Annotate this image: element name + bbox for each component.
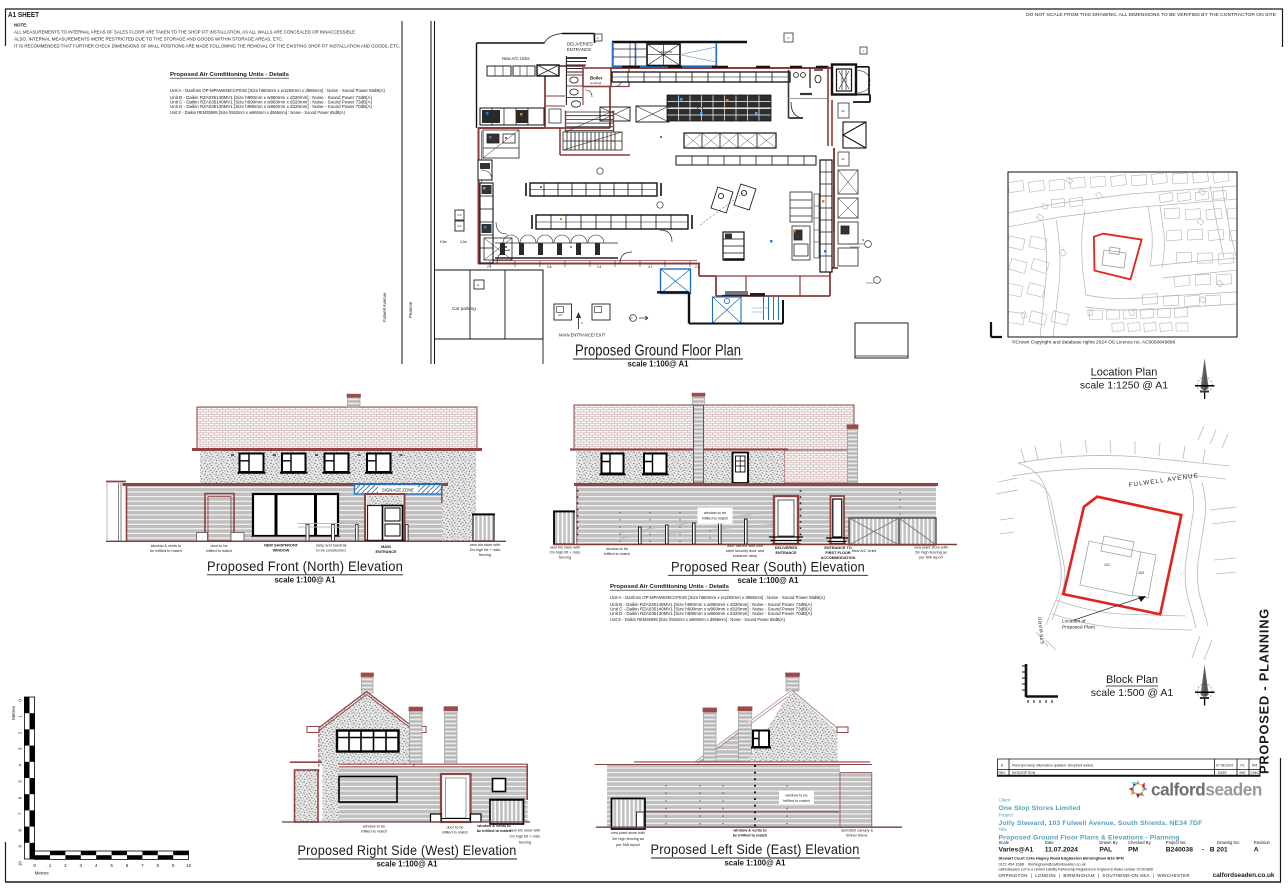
svg-text:B 201: B 201: [1210, 847, 1228, 854]
svg-text:Pearson: Pearson: [408, 301, 413, 318]
svg-text:103: 103: [1138, 571, 1144, 575]
svg-text:Unit E - Daikin REM35999 [Size: Unit E - Daikin REM35999 [Size h552mm x …: [170, 110, 346, 115]
svg-text:door altered with new: door altered with new: [727, 544, 763, 548]
svg-text:Boiler: Boiler: [590, 76, 603, 81]
svg-text:Unit D - Daikin RZA035130MV1 [: Unit D - Daikin RZA035130MV1 [Size h990m…: [610, 611, 813, 616]
svg-text:Revision: Revision: [1254, 840, 1271, 845]
svg-text:to be constructed: to be constructed: [316, 549, 345, 553]
svg-text:3: 3: [80, 863, 83, 868]
svg-text:0: 0: [33, 863, 36, 868]
svg-text:window to be: window to be: [704, 511, 726, 515]
svg-text:Proposed Left Side (East) Elev: Proposed Left Side (East) Elevation: [651, 841, 860, 857]
svg-text:door to be: door to be: [446, 826, 463, 830]
svg-text:CHKD: CHKD: [1251, 771, 1261, 775]
svg-text:Block Plan: Block Plan: [1106, 674, 1158, 686]
svg-text:-: -: [1202, 847, 1204, 854]
svg-text:FIRST FLOOR: FIRST FLOOR: [825, 551, 851, 555]
svg-text:window to be: window to be: [785, 794, 807, 798]
svg-text:8: 8: [18, 829, 23, 832]
svg-text:steel security door and: steel security door and: [726, 549, 764, 553]
svg-text:per NIA report: per NIA report: [616, 843, 641, 847]
svg-text:Scale: Scale: [999, 840, 1010, 845]
svg-text:NOTE:: NOTE:: [14, 23, 28, 28]
svg-text:window & vents to: window & vents to: [476, 824, 511, 828]
svg-text:New A/C Units: New A/C Units: [852, 549, 877, 553]
svg-text:new bin store with: new bin store with: [510, 829, 540, 833]
svg-text:2.1: 2.1: [487, 265, 492, 269]
svg-text:calfordseaden.co.uk: calfordseaden.co.uk: [1213, 872, 1275, 879]
svg-text:A1 SHEET: A1 SHEET: [8, 10, 40, 19]
svg-text:ORPINGTON | LONDON | BIRMI: ORPINGTON | LONDON | BIRMINGHAM | SOUTHE…: [999, 873, 1190, 878]
svg-text:Location Plan: Location Plan: [1091, 367, 1158, 379]
svg-text:DATE: DATE: [1218, 771, 1228, 775]
svg-text:Title: Title: [999, 827, 1008, 832]
svg-text:Location of: Location of: [1062, 619, 1086, 625]
svg-text:Unit E - Daikin REM35999 [Size: Unit E - Daikin REM35999 [Size h552mm x …: [610, 617, 786, 622]
svg-text:5: 5: [18, 780, 23, 783]
svg-text:be infilled to match: be infilled to match: [733, 834, 768, 838]
svg-text:NEW SHOPFRONT: NEW SHOPFRONT: [264, 544, 298, 548]
svg-text:scale 1:100@ A1: scale 1:100@ A1: [376, 860, 438, 869]
svg-text:(existing): (existing): [590, 81, 601, 85]
svg-text:Date: Date: [1045, 840, 1055, 845]
svg-text:6.5m: 6.5m: [440, 240, 447, 244]
svg-text:ALL MEASUREMENTS TO INTERNAL A: ALL MEASUREMENTS TO INTERNAL AREAS OF SA…: [14, 30, 355, 35]
svg-text:new bin store with: new bin store with: [550, 546, 580, 550]
svg-text:window & vents to: window & vents to: [151, 544, 182, 548]
svg-text:1: 1: [49, 863, 52, 868]
svg-text:8: 8: [157, 863, 160, 868]
svg-text:7: 7: [18, 812, 23, 815]
svg-text:stock: stock: [725, 236, 731, 239]
svg-text:Proposed Front (North) Elevati: Proposed Front (North) Elevation: [207, 558, 403, 574]
svg-text:ENTRANCE: ENTRANCE: [375, 550, 397, 554]
svg-text:2.8: 2.8: [695, 265, 700, 269]
svg-text:scale 1:100@ A1: scale 1:100@ A1: [274, 576, 336, 585]
svg-text:Stewart Court 214a Hagley Road: Stewart Court 214a Hagley Road Edgbaston…: [999, 856, 1124, 861]
svg-text:Checked By: Checked By: [1128, 840, 1151, 845]
svg-text:Proposed Ground Floor Plans &: Proposed Ground Floor Plans & Elevations…: [999, 835, 1180, 842]
svg-text:Metres: Metres: [11, 705, 16, 720]
svg-text:Drawing No:: Drawing No:: [1217, 840, 1240, 845]
svg-text:infilled to match: infilled to match: [442, 831, 468, 835]
svg-text:fencing: fencing: [479, 553, 491, 557]
svg-text:Unit A - Danfoss OP-MPAM035CCP: Unit A - Danfoss OP-MPAM035CCP04G [Size …: [610, 595, 826, 600]
svg-text:3.4: 3.4: [597, 265, 602, 269]
svg-text:MAINS INT: MAINS INT: [659, 50, 673, 54]
svg-text:2m high fencing as: 2m high fencing as: [915, 551, 947, 555]
svg-text:REV: REV: [999, 771, 1007, 775]
svg-text:07.08.2024: 07.08.2024: [1216, 764, 1233, 768]
svg-text:scale 1:500 @ A1: scale 1:500 @ A1: [1091, 687, 1174, 699]
svg-text:2m high fencing as: 2m high fencing as: [612, 837, 644, 841]
svg-text:scale 1:100@ A1: scale 1:100@ A1: [737, 576, 799, 585]
svg-text:PAL: PAL: [1099, 847, 1112, 854]
svg-text:A: A: [1254, 847, 1259, 854]
svg-text:Client: Client: [999, 798, 1011, 803]
svg-text:PM: PM: [1252, 764, 1257, 768]
svg-text:10: 10: [18, 861, 23, 867]
svg-text:ALSO, INTERNAL MEASUREMENTS WE: ALSO, INTERNAL MEASUREMENTS WERE RESTRIC…: [14, 37, 283, 42]
svg-text:per NIA report: per NIA report: [919, 556, 944, 560]
svg-text:ramp and handrail: ramp and handrail: [316, 544, 347, 548]
svg-text:be infilled to match: be infilled to match: [477, 829, 512, 833]
svg-text:Car parking: Car parking: [452, 306, 476, 311]
svg-text:101: 101: [1104, 563, 1110, 567]
svg-text:DELIVERIES: DELIVERIES: [775, 546, 798, 550]
svg-text:ENTRANCE: ENTRANCE: [775, 551, 797, 555]
svg-text:New A/C Units: New A/C Units: [502, 56, 530, 61]
svg-text:Proposed Rear (South) Elevatio: Proposed Rear (South) Elevation: [671, 559, 865, 575]
svg-text:Proposed Ground Floor Plan: Proposed Ground Floor Plan: [575, 343, 741, 360]
svg-text:3: 3: [18, 747, 23, 750]
svg-text:PL: PL: [1241, 764, 1245, 768]
svg-text:Plant and ramp information upd: Plant and ramp information updated. Shop…: [1012, 764, 1094, 768]
svg-text:window to be: window to be: [363, 825, 385, 829]
svg-text:DELIVERIES: DELIVERIES: [567, 42, 593, 47]
svg-text:infilled to match: infilled to match: [206, 549, 232, 553]
svg-text:window & vents to: window & vents to: [732, 829, 767, 833]
svg-text:Fulwell Avenue: Fulwell Avenue: [382, 292, 387, 322]
svg-text:ENTRANCE TO: ENTRANCE TO: [824, 546, 851, 550]
svg-text:Project No:: Project No:: [1166, 840, 1187, 845]
svg-text:One Stop Stores Limited: One Stop Stores Limited: [999, 805, 1081, 812]
svg-text:0: 0: [18, 699, 23, 702]
svg-text:Drawn By: Drawn By: [1099, 840, 1118, 845]
svg-text:window to be: window to be: [606, 547, 628, 551]
svg-text:9: 9: [172, 863, 175, 868]
svg-text:Proposed Air Conditioning Unit: Proposed Air Conditioning Units - Detail…: [610, 584, 729, 590]
svg-text:be infilled to match: be infilled to match: [150, 549, 182, 553]
svg-text:fencing: fencing: [519, 841, 531, 845]
svg-text:2m high htt + misc: 2m high htt + misc: [550, 551, 581, 555]
svg-text:Proposed Air Conditioning Unit: Proposed Air Conditioning Units - Detail…: [170, 72, 289, 78]
svg-text:fencing: fencing: [559, 556, 571, 560]
svg-text:ENTRANCE: ENTRANCE: [567, 47, 591, 52]
svg-text:SIGNAGE ZONE: SIGNAGE ZONE: [382, 488, 414, 493]
svg-text:door to be: door to be: [210, 544, 227, 548]
svg-text:Project: Project: [999, 813, 1014, 818]
svg-text:11.07.2024: 11.07.2024: [1045, 847, 1078, 854]
svg-text:P: P: [631, 317, 633, 321]
svg-text:Proposed Plant: Proposed Plant: [1062, 625, 1095, 631]
svg-text:infilled to match: infilled to match: [783, 799, 809, 803]
svg-text:5.8: 5.8: [547, 265, 552, 269]
svg-text:9: 9: [18, 845, 23, 848]
svg-text:0121 454 1688 birmingham@ca: 0121 454 1688 birmingham@calfordseaden.c…: [999, 863, 1086, 867]
svg-text:AC: AC: [841, 157, 845, 161]
svg-text:infilled to match: infilled to match: [702, 517, 728, 521]
svg-text:IT IS RECOMMENDED THAT FURTHER: IT IS RECOMMENDED THAT FURTHER CHECK DIM…: [14, 44, 400, 49]
svg-text:6: 6: [126, 863, 129, 868]
svg-text:7: 7: [141, 863, 144, 868]
svg-text:AC: AC: [841, 109, 845, 113]
svg-text:new plant store with: new plant store with: [611, 831, 645, 835]
svg-text:10: 10: [186, 863, 192, 868]
svg-text:scale 1:100@ A1: scale 1:100@ A1: [724, 859, 786, 868]
svg-text:©Crown Copyright and database: ©Crown Copyright and database rights 202…: [1012, 339, 1176, 346]
svg-text:DO NOT SCALE FROM THIS DRAWING: DO NOT SCALE FROM THIS DRAWING. ALL DIME…: [1026, 12, 1276, 17]
svg-text:calfordseaden: calfordseaden: [1151, 780, 1262, 800]
svg-text:Unit A - Danfoss OP-MPAM035CCP: Unit A - Danfoss OP-MPAM035CCP04G [Size …: [170, 88, 386, 93]
svg-text:4.1: 4.1: [648, 265, 653, 269]
svg-text:INIT: INIT: [1240, 771, 1246, 775]
svg-text:PM: PM: [1128, 847, 1138, 854]
svg-text:infilled to match: infilled to match: [604, 552, 630, 556]
svg-text:4: 4: [477, 284, 479, 288]
svg-text:calfordseaden LLP is a Limited: calfordseaden LLP is a Limited Liability…: [999, 868, 1153, 872]
svg-text:4: 4: [18, 764, 23, 767]
svg-text:WINDOW: WINDOW: [273, 549, 290, 553]
svg-text:2: 2: [18, 731, 23, 734]
svg-text:demolish canopy &: demolish canopy &: [841, 829, 874, 833]
svg-text:Unit D - Daikin RZA035130MV1 [: Unit D - Daikin RZA035130MV1 [Size h990m…: [170, 104, 373, 109]
svg-text:B240038: B240038: [1166, 847, 1193, 854]
svg-text:A/C: A/C: [558, 313, 562, 317]
svg-text:infilled to match: infilled to match: [361, 830, 387, 834]
svg-text:new plant store with: new plant store with: [914, 546, 948, 550]
svg-text:entrance ramp: entrance ramp: [733, 554, 757, 558]
svg-text:6: 6: [18, 796, 23, 799]
svg-text:DESCRIPTION: DESCRIPTION: [1012, 771, 1036, 775]
svg-text:1: 1: [18, 715, 23, 718]
svg-text:timber frame: timber frame: [846, 834, 867, 838]
svg-text:4.2m: 4.2m: [460, 240, 467, 244]
svg-text:scale 1:100@ A1: scale 1:100@ A1: [627, 360, 689, 369]
svg-text:2m high htt + misc: 2m high htt + misc: [510, 835, 541, 839]
svg-text:MAIN ENTRANCE/ EXIT: MAIN ENTRANCE/ EXIT: [559, 333, 606, 338]
svg-text:Jolly Steward, 103 Fulwell Ave: Jolly Steward, 103 Fulwell Avenue, South…: [999, 820, 1203, 827]
svg-text:new bin store with: new bin store with: [470, 543, 500, 547]
svg-text:2: 2: [64, 863, 67, 868]
svg-text:PROPOSED - PLANNING: PROPOSED - PLANNING: [1258, 608, 1272, 774]
svg-text:2m high htt + misc: 2m high htt + misc: [470, 548, 501, 552]
svg-text:Varies@A1: Varies@A1: [999, 847, 1034, 854]
svg-text:Metres: Metres: [35, 871, 50, 876]
svg-text:4: 4: [95, 863, 98, 868]
svg-text:Proposed Right Side (West) Ele: Proposed Right Side (West) Elevation: [298, 842, 517, 858]
svg-text:scale 1:1250 @ A1: scale 1:1250 @ A1: [1080, 380, 1168, 392]
svg-text:MAIN: MAIN: [381, 545, 391, 549]
svg-text:5: 5: [110, 863, 113, 868]
